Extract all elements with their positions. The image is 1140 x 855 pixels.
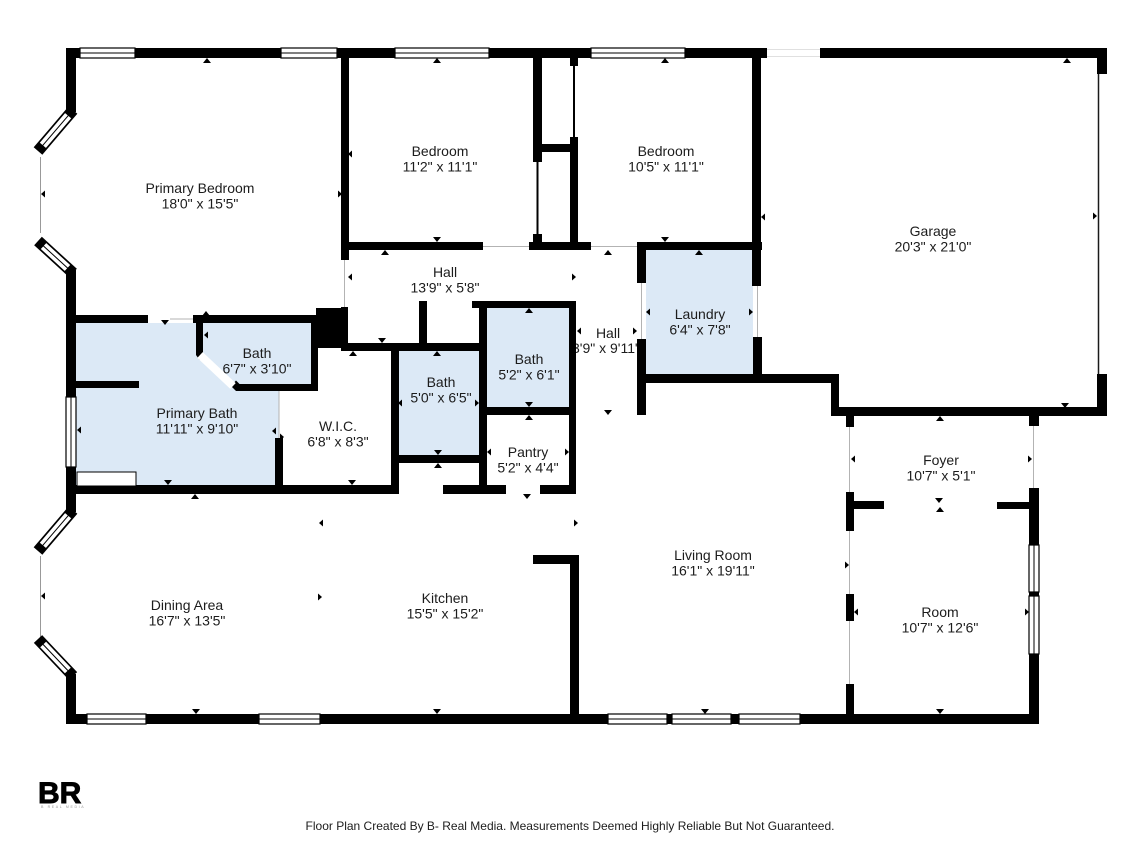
svg-text:Dining Area: Dining Area	[151, 597, 224, 613]
svg-text:Living Room: Living Room	[674, 547, 752, 563]
svg-text:5'0" x 6'5": 5'0" x 6'5"	[410, 390, 471, 406]
svg-text:W.I.C.: W.I.C.	[319, 418, 357, 434]
svg-text:5'2" x 6'1": 5'2" x 6'1"	[498, 367, 559, 383]
svg-text:15'5" x 15'2": 15'5" x 15'2"	[407, 606, 484, 622]
svg-text:6'4" x 7'8": 6'4" x 7'8"	[669, 322, 730, 338]
svg-text:10'7" x 5'1": 10'7" x 5'1"	[907, 468, 976, 484]
svg-text:Laundry: Laundry	[675, 306, 726, 322]
svg-text:6'8" x 8'3": 6'8" x 8'3"	[307, 434, 368, 450]
svg-text:Hall: Hall	[433, 264, 457, 280]
svg-text:Garage: Garage	[910, 223, 957, 239]
svg-text:Bath: Bath	[515, 351, 544, 367]
svg-text:Bath: Bath	[427, 374, 456, 390]
svg-text:Hall: Hall	[596, 325, 620, 341]
svg-text:3'9" x 9'11": 3'9" x 9'11"	[572, 340, 640, 356]
svg-text:Room: Room	[921, 604, 958, 620]
svg-text:11'11" x 9'10": 11'11" x 9'10"	[156, 421, 239, 437]
svg-text:18'0" x 15'5": 18'0" x 15'5"	[162, 196, 239, 212]
svg-text:Pantry: Pantry	[508, 444, 548, 460]
svg-text:5'2" x 4'4": 5'2" x 4'4"	[497, 460, 558, 476]
svg-text:11'2" x 11'1": 11'2" x 11'1"	[403, 159, 478, 175]
svg-text:10'5" x 11'1": 10'5" x 11'1"	[628, 159, 704, 175]
svg-text:Floor Plan Created By B- Real: Floor Plan Created By B- Real Media. Mea…	[306, 819, 835, 833]
svg-text:Foyer: Foyer	[923, 452, 959, 468]
svg-text:Bedroom: Bedroom	[638, 143, 695, 159]
svg-text:13'9" x 5'8": 13'9" x 5'8"	[411, 280, 480, 296]
svg-text:10'7" x 12'6": 10'7" x 12'6"	[902, 620, 979, 636]
svg-text:Kitchen: Kitchen	[422, 590, 469, 606]
svg-text:Primary Bath: Primary Bath	[157, 405, 238, 421]
svg-text:16'1" x 19'11": 16'1" x 19'11"	[671, 563, 755, 579]
svg-text:B REAL MEDIA: B REAL MEDIA	[41, 805, 85, 809]
svg-text:20'3" x 21'0": 20'3" x 21'0"	[895, 239, 972, 255]
svg-text:16'7" x 13'5": 16'7" x 13'5"	[149, 613, 226, 629]
svg-text:Bedroom: Bedroom	[412, 143, 469, 159]
svg-text:Primary Bedroom: Primary Bedroom	[146, 180, 255, 196]
svg-text:6'7" x 3'10": 6'7" x 3'10"	[223, 361, 292, 377]
svg-text:Bath: Bath	[243, 345, 272, 361]
